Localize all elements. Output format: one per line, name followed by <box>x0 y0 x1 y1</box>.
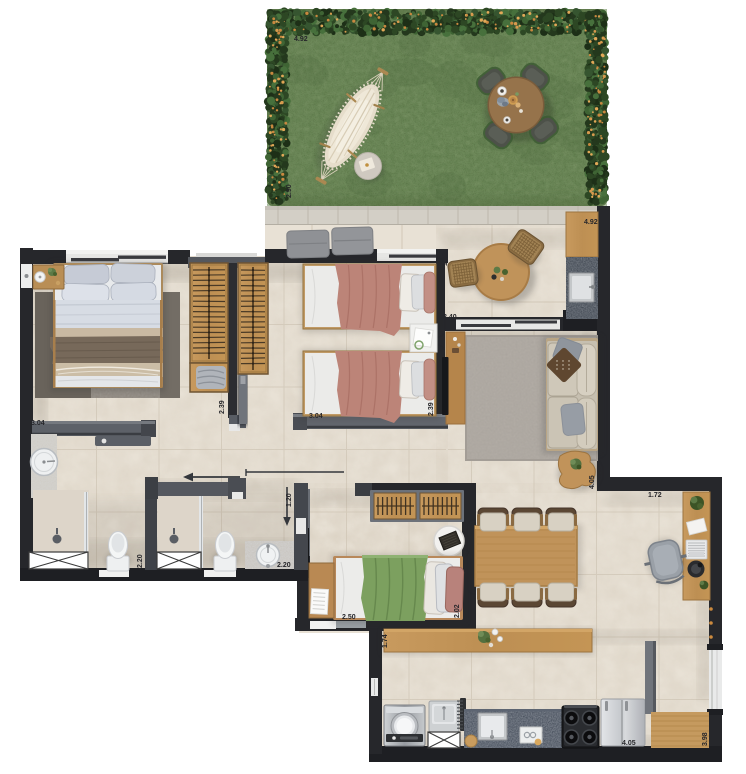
svg-text:1.74: 1.74 <box>382 634 389 648</box>
svg-text:1.62: 1.62 <box>442 252 449 266</box>
svg-text:2.90: 2.90 <box>286 184 293 198</box>
svg-text:2.02: 2.02 <box>454 604 461 618</box>
svg-text:4.05: 4.05 <box>622 740 636 747</box>
svg-text:3.04: 3.04 <box>309 413 323 420</box>
svg-text:2.50: 2.50 <box>342 614 356 621</box>
svg-text:2.20: 2.20 <box>137 554 144 568</box>
svg-text:3.98: 3.98 <box>702 732 709 746</box>
svg-text:4.92: 4.92 <box>584 219 598 226</box>
svg-text:2.39: 2.39 <box>428 402 435 416</box>
svg-text:3.04: 3.04 <box>31 420 45 427</box>
svg-text:1.72: 1.72 <box>648 492 662 499</box>
svg-text:2.39: 2.39 <box>219 400 226 414</box>
svg-text:2.20: 2.20 <box>277 562 291 569</box>
svg-text:1.20: 1.20 <box>286 493 293 507</box>
svg-text:2.40: 2.40 <box>443 314 457 321</box>
svg-text:4.92: 4.92 <box>294 36 308 43</box>
svg-text:4.05: 4.05 <box>589 475 596 489</box>
